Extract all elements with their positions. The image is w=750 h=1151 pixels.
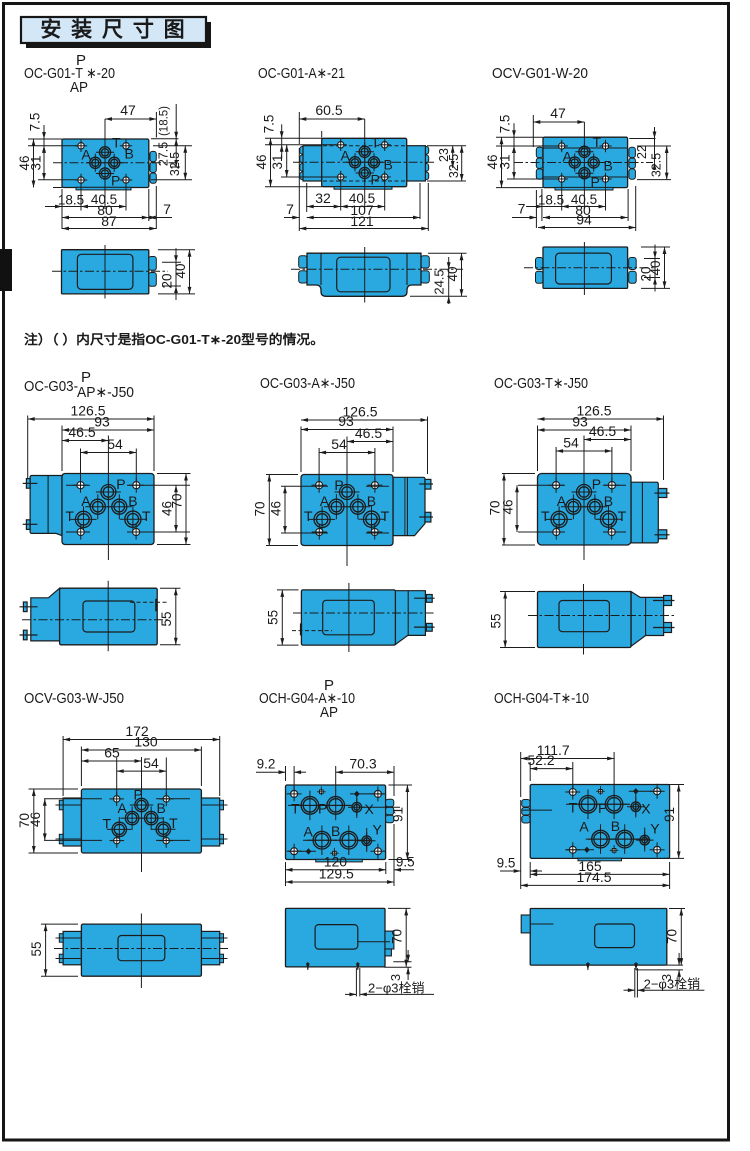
svg-text:22: 22	[635, 145, 649, 159]
svg-text:93: 93	[572, 414, 588, 430]
svg-text:B: B	[157, 800, 166, 816]
svg-text:T: T	[291, 801, 300, 817]
svg-text:P: P	[76, 52, 86, 69]
svg-text:87: 87	[101, 213, 117, 229]
svg-text:B: B	[604, 493, 613, 509]
svg-text:174.5: 174.5	[576, 869, 611, 885]
svg-text:70: 70	[665, 929, 680, 944]
svg-text:70: 70	[253, 501, 268, 516]
svg-text:安 装 尺 寸 图: 安 装 尺 寸 图	[40, 18, 186, 42]
svg-text:18.5: 18.5	[58, 193, 84, 208]
svg-text:A: A	[563, 148, 573, 164]
svg-text:P: P	[334, 477, 343, 493]
svg-text:7.5: 7.5	[498, 115, 513, 134]
svg-text:2−φ3栓销: 2−φ3栓销	[644, 976, 700, 991]
svg-text:46.5: 46.5	[589, 423, 616, 439]
svg-text:注）（ ）内尺寸是指OC-G01-T∗-20型号的情况。: 注）（ ）内尺寸是指OC-G01-T∗-20型号的情况。	[24, 332, 324, 347]
svg-text:7: 7	[163, 201, 171, 217]
svg-text:A: A	[304, 824, 314, 840]
svg-text:47: 47	[120, 102, 136, 118]
svg-text:B: B	[604, 157, 613, 173]
svg-text:T: T	[541, 508, 550, 524]
svg-text:B: B	[331, 823, 340, 839]
svg-text:65: 65	[104, 745, 120, 761]
svg-text:OCV-G01-W-20: OCV-G01-W-20	[492, 65, 588, 82]
svg-text:52.2: 52.2	[527, 752, 554, 768]
svg-text:P: P	[116, 476, 125, 492]
svg-text:T: T	[593, 134, 602, 150]
svg-text:B: B	[125, 146, 134, 162]
svg-text:91: 91	[662, 807, 677, 822]
svg-text:32.5: 32.5	[649, 153, 663, 177]
svg-text:OCH-G04-T∗-10: OCH-G04-T∗-10	[494, 690, 589, 707]
svg-text:93: 93	[338, 413, 354, 429]
svg-text:47: 47	[550, 105, 566, 121]
svg-text:91: 91	[391, 807, 406, 822]
svg-text:OC-G03-A∗-J50: OC-G03-A∗-J50	[260, 375, 355, 392]
svg-text:32.5: 32.5	[168, 152, 182, 176]
svg-text:46.5: 46.5	[68, 424, 95, 440]
svg-text:P: P	[111, 173, 120, 189]
svg-text:70: 70	[487, 500, 502, 515]
svg-text:OC-G03-: OC-G03-	[24, 378, 78, 395]
svg-text:46: 46	[500, 499, 515, 514]
svg-text:130: 130	[134, 734, 158, 750]
svg-text:P: P	[598, 800, 607, 816]
svg-text:40: 40	[445, 266, 460, 281]
svg-text:7.5: 7.5	[262, 115, 277, 134]
svg-text:7: 7	[518, 201, 526, 217]
svg-text:46.5: 46.5	[355, 425, 382, 441]
svg-text:32.5: 32.5	[447, 154, 461, 178]
svg-text:31: 31	[270, 154, 285, 169]
svg-text:OCH-G04-A∗-10: OCH-G04-A∗-10	[259, 690, 355, 707]
svg-text:54: 54	[143, 755, 159, 771]
svg-text:94: 94	[576, 212, 592, 228]
svg-text:(18.5): (18.5)	[158, 106, 170, 136]
svg-text:T: T	[142, 508, 151, 524]
svg-text:T: T	[169, 815, 178, 831]
svg-text:B: B	[384, 156, 393, 172]
svg-text:70: 70	[390, 929, 405, 944]
svg-text:B: B	[367, 493, 376, 509]
svg-text:9.5: 9.5	[396, 854, 415, 869]
svg-text:A: A	[82, 147, 92, 163]
svg-text:OC-G01-A∗-21: OC-G01-A∗-21	[258, 65, 345, 82]
svg-text:40: 40	[173, 263, 188, 278]
svg-text:X: X	[365, 801, 375, 817]
svg-text:Y: Y	[650, 821, 660, 837]
svg-text:55: 55	[266, 610, 281, 625]
svg-text:A: A	[320, 493, 330, 509]
svg-text:7.5: 7.5	[28, 113, 43, 132]
svg-text:93: 93	[94, 414, 110, 430]
svg-text:P: P	[371, 172, 380, 188]
svg-text:40: 40	[648, 260, 663, 275]
svg-text:A: A	[81, 493, 91, 509]
svg-text:AP: AP	[70, 79, 88, 96]
svg-text:A: A	[118, 800, 128, 816]
svg-text:B: B	[611, 818, 620, 834]
svg-text:T: T	[112, 135, 121, 151]
svg-text:46: 46	[254, 154, 269, 169]
svg-text:70: 70	[17, 813, 32, 828]
svg-text:46: 46	[268, 501, 283, 516]
svg-text:T: T	[304, 508, 313, 524]
svg-text:T: T	[103, 816, 112, 832]
svg-text:54: 54	[331, 436, 347, 452]
svg-text:B: B	[128, 493, 137, 509]
svg-text:A: A	[341, 147, 351, 163]
svg-text:T: T	[65, 508, 74, 524]
svg-text:129.5: 129.5	[319, 866, 354, 882]
svg-text:P: P	[318, 801, 327, 817]
svg-text:P: P	[134, 787, 143, 803]
svg-text:9.2: 9.2	[257, 757, 276, 772]
svg-text:18.5: 18.5	[538, 193, 564, 208]
svg-text:32: 32	[315, 190, 331, 206]
svg-text:T: T	[618, 508, 627, 524]
svg-text:T: T	[381, 508, 390, 524]
svg-text:P: P	[592, 476, 601, 492]
svg-text:70.3: 70.3	[349, 756, 376, 772]
svg-text:55: 55	[159, 611, 174, 626]
svg-text:X: X	[641, 800, 651, 816]
svg-text:2−φ3栓销: 2−φ3栓销	[368, 980, 424, 995]
svg-text:55: 55	[489, 613, 504, 628]
svg-text:31: 31	[498, 154, 513, 169]
svg-text:P: P	[591, 174, 600, 190]
svg-text:60.5: 60.5	[315, 102, 342, 118]
svg-text:AP∗-J50: AP∗-J50	[77, 384, 134, 401]
svg-text:AP: AP	[320, 704, 338, 721]
svg-text:54: 54	[107, 436, 123, 452]
svg-text:Y: Y	[373, 822, 383, 838]
svg-text:T: T	[371, 134, 380, 150]
svg-text:A: A	[579, 818, 589, 834]
svg-text:9.5: 9.5	[497, 855, 516, 870]
svg-text:54: 54	[563, 435, 579, 451]
svg-text:70: 70	[169, 493, 184, 508]
svg-text:121: 121	[350, 213, 374, 229]
svg-text:55: 55	[29, 941, 44, 956]
svg-text:OCV-G03-W-J50: OCV-G03-W-J50	[24, 690, 124, 707]
svg-text:T: T	[569, 800, 578, 816]
svg-text:A: A	[557, 493, 567, 509]
svg-text:31: 31	[29, 155, 44, 170]
svg-text:7: 7	[286, 201, 294, 217]
svg-text:P: P	[324, 677, 334, 694]
svg-text:OC-G03-T∗-J50: OC-G03-T∗-J50	[494, 375, 588, 392]
